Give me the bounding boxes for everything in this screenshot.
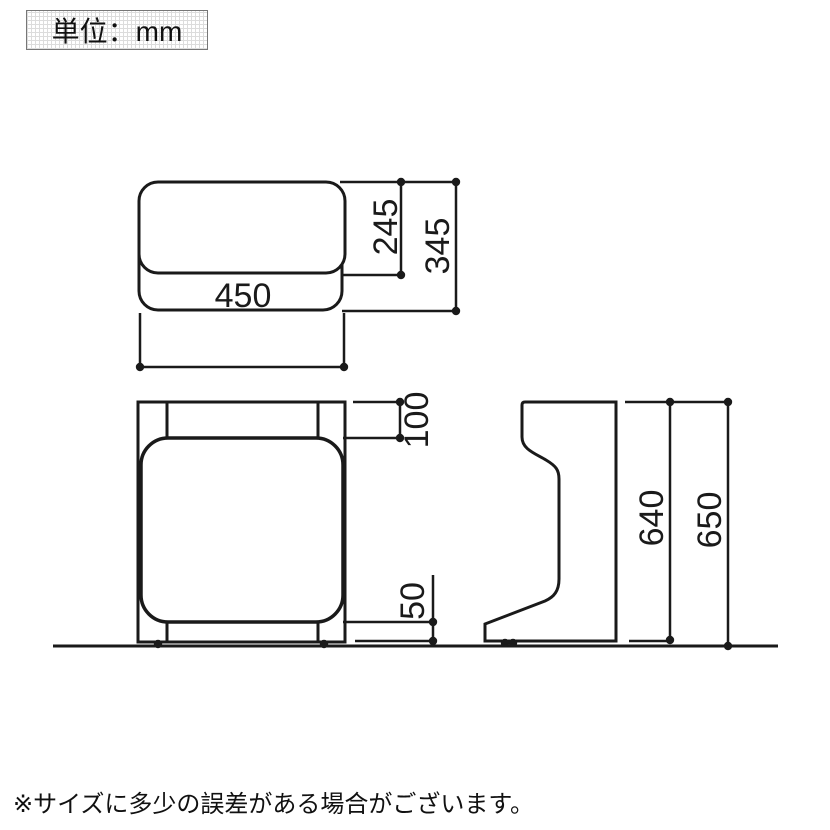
dim-50-dot-bottom (429, 637, 437, 645)
dim-640-label: 640 (633, 490, 671, 547)
dim-345-dot-top (452, 178, 460, 186)
front-cushion-outline (141, 438, 343, 622)
side-foot-dot-back (501, 639, 509, 647)
top-view: 450 245 345 (136, 178, 460, 371)
dim-450-dot-left (136, 363, 144, 371)
dim-345-label: 345 (419, 218, 457, 275)
front-view: 100 50 (138, 392, 437, 646)
side-view: 640 650 (485, 398, 732, 650)
side-profile-outline (485, 402, 616, 641)
front-foot-dot-left (154, 640, 162, 648)
dim-345-dot-bottom (452, 307, 460, 315)
dim-245-dot-top (397, 178, 405, 186)
dim-640-dot-bottom (666, 636, 674, 644)
front-foot-dot-right (320, 640, 328, 648)
dim-640-dot-top (666, 398, 674, 406)
dim-50-label: 50 (394, 582, 432, 620)
size-disclaimer-note: ※サイズに多少の誤差がある場合がございます。 (13, 784, 534, 819)
top-view-seat-outline (139, 182, 345, 273)
dim-650-label: 650 (691, 492, 729, 549)
dim-450-label: 450 (215, 277, 272, 315)
dim-100-label: 100 (398, 392, 436, 449)
dim-650-dot-top (724, 398, 732, 406)
dim-245-label: 245 (367, 199, 405, 256)
side-foot-dot-front (509, 639, 517, 647)
dim-450-dot-right (340, 363, 348, 371)
dim-245-dot-bottom (397, 271, 405, 279)
technical-drawing: 450 245 345 100 50 (0, 0, 830, 830)
dimension-diagram-page: 単位：mm 450 245 345 (0, 0, 830, 830)
